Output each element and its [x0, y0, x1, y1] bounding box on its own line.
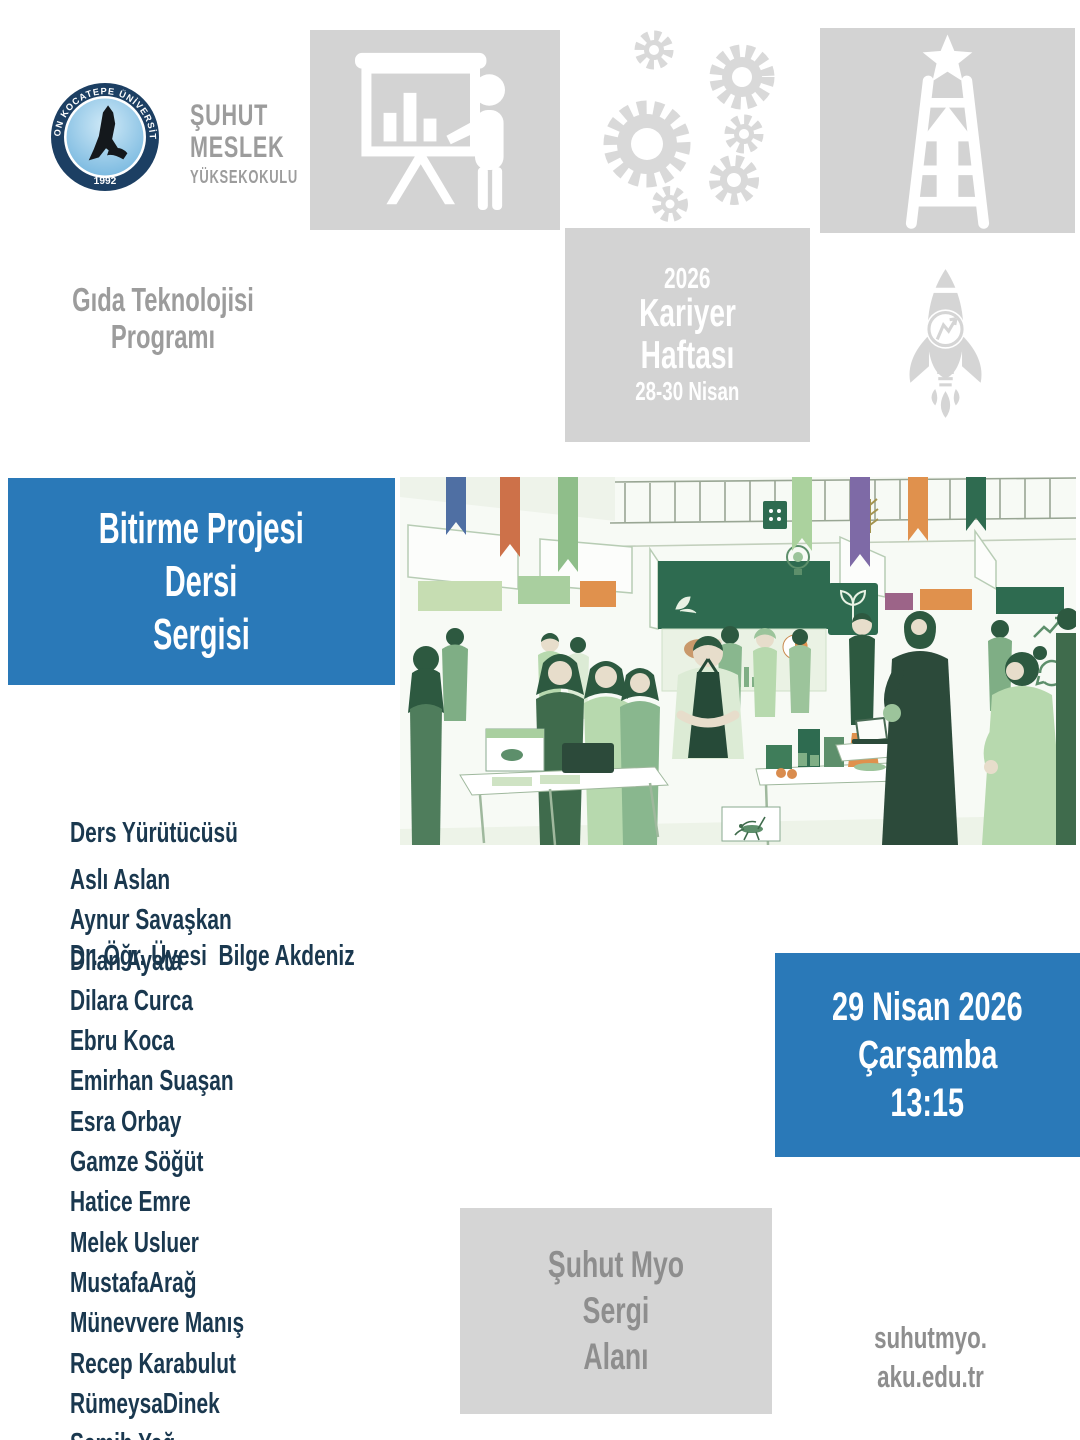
- student-name: Hatice Emre: [70, 1182, 244, 1222]
- event-title-box: Bitirme Projesi Dersi Sergisi: [8, 478, 395, 685]
- student-name: Dilara Curca: [70, 981, 244, 1021]
- schedule-day: Çarşamba: [858, 1031, 997, 1079]
- exhibition-illustration: [400, 477, 1076, 845]
- venue-line-1: Şuhut Myo: [504, 1242, 729, 1288]
- career-ladder-box: [820, 28, 1075, 233]
- career-week-year: 2026: [664, 266, 710, 293]
- school-name-line-2: MESLEK: [190, 132, 298, 164]
- student-name: Melek Usluer: [70, 1223, 244, 1263]
- website-line-2: aku.edu.tr: [871, 1357, 990, 1396]
- rocket-idea-icon: [893, 265, 998, 420]
- event-poster: AFYON KOCATEPE ÜNİVERSİTESİ 1992 ŞUHUT M…: [0, 0, 1080, 1440]
- website-url: suhutmyo. aku.edu.tr: [848, 1318, 1013, 1396]
- school-name-line-1: ŞUHUT: [190, 100, 298, 132]
- presentation-box: [310, 30, 560, 230]
- program-name: Gıda Teknolojisi Programı: [22, 281, 304, 355]
- event-title-line-1: Bitirme Projesi: [99, 502, 304, 555]
- student-name: Aslı Aslan: [70, 860, 244, 900]
- school-name-line-3: YÜKSEKOKULU: [190, 164, 298, 190]
- venue-box: Şuhut Myo Sergi Alanı: [460, 1208, 772, 1414]
- student-name: Münevvere Manış: [70, 1303, 244, 1343]
- students-list: Aslı Aslan Aynur Savaşkan Dilan Ayata Di…: [70, 860, 312, 1440]
- student-name: Ebru Koca: [70, 1021, 244, 1061]
- career-ladder-star-icon: [820, 28, 1075, 233]
- venue-line-2: Sergi: [504, 1288, 729, 1334]
- student-name: Semih Yağ: [70, 1424, 244, 1440]
- student-name: Esra Orbay: [70, 1102, 244, 1142]
- venue-line-3: Alanı: [504, 1334, 729, 1380]
- program-name-line-1: Gıda Teknolojisi: [61, 281, 264, 318]
- university-seal-icon: AFYON KOCATEPE ÜNİVERSİTESİ 1992: [50, 82, 160, 192]
- presentation-board-icon: [310, 30, 560, 230]
- career-week-dates: 28-30 Nisan: [635, 377, 739, 405]
- schedule-box: 29 Nisan 2026 Çarşamba 13:15: [775, 953, 1080, 1157]
- student-name: Aynur Savaşkan: [70, 900, 244, 940]
- gears-icon: [592, 22, 777, 227]
- student-name: RümeysaDinek: [70, 1384, 244, 1424]
- schedule-date: 29 Nisan 2026: [832, 983, 1023, 1031]
- student-name: Emirhan Suaşan: [70, 1061, 244, 1101]
- event-title-line-3: Sergisi: [153, 608, 250, 661]
- career-week-box: 2026 Kariyer Haftası 28-30 Nisan: [565, 228, 810, 442]
- schedule-time: 13:15: [891, 1079, 965, 1127]
- student-name: MustafaArağ: [70, 1263, 244, 1303]
- student-name: Recep Karabulut: [70, 1344, 244, 1384]
- website-line-1: suhutmyo.: [871, 1318, 990, 1357]
- student-name: Dilan Ayata: [70, 941, 244, 981]
- instructor-label: Ders Yürütücüsü: [70, 813, 355, 854]
- career-week-title: Kariyer Haftası: [599, 293, 775, 377]
- logo-year: 1992: [94, 176, 117, 187]
- event-title-line-2: Dersi: [165, 555, 238, 608]
- program-name-line-2: Programı: [61, 318, 264, 355]
- student-name: Gamze Söğüt: [70, 1142, 244, 1182]
